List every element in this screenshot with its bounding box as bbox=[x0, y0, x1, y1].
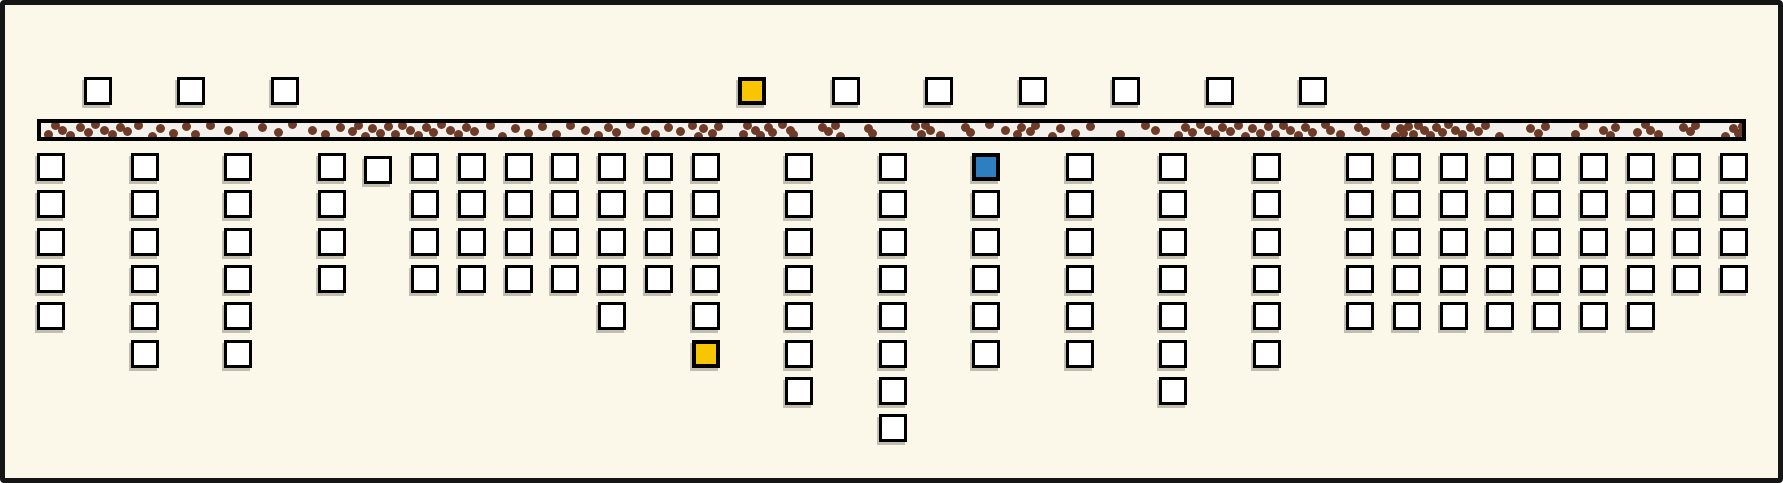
col29-row3-grid-square[interactable] bbox=[1393, 228, 1421, 256]
col32-row4-grid-square[interactable] bbox=[1533, 265, 1561, 293]
track-dot bbox=[1141, 121, 1150, 130]
col13-row4-grid-square[interactable] bbox=[645, 265, 673, 293]
track-dot bbox=[1534, 129, 1543, 138]
top-slot1-grid-square[interactable] bbox=[84, 77, 112, 105]
col4-row2-grid-square[interactable] bbox=[224, 190, 252, 218]
figure-canvas bbox=[0, 0, 1783, 483]
track-dot bbox=[156, 124, 165, 133]
col22-row4-grid-square[interactable] bbox=[1066, 265, 1094, 293]
col34-row4-grid-square[interactable] bbox=[1627, 265, 1655, 293]
col4-row6-grid-square[interactable] bbox=[224, 340, 252, 368]
col16-row7-grid-square[interactable] bbox=[785, 377, 813, 405]
col22-row6-grid-square[interactable] bbox=[1066, 340, 1094, 368]
col18-row6-grid-square[interactable] bbox=[879, 340, 907, 368]
col26-row2-grid-square[interactable] bbox=[1253, 190, 1281, 218]
col6-row2-grid-square[interactable] bbox=[318, 190, 346, 218]
track-dot bbox=[1241, 132, 1250, 141]
col13-row2-grid-square[interactable] bbox=[645, 190, 673, 218]
top-slot21-grid-square[interactable] bbox=[1019, 77, 1047, 105]
col36-row3-grid-square[interactable] bbox=[1720, 228, 1748, 256]
track-dot bbox=[1017, 123, 1026, 132]
col4-row5-grid-square[interactable] bbox=[224, 302, 252, 330]
col26-row3-grid-square[interactable] bbox=[1253, 228, 1281, 256]
col6-row4-grid-square[interactable] bbox=[318, 265, 346, 293]
track-dot bbox=[1294, 131, 1303, 140]
col35-row3-grid-square[interactable] bbox=[1673, 228, 1701, 256]
col8-row4-grid-square[interactable] bbox=[411, 265, 439, 293]
track-dot bbox=[437, 120, 446, 129]
col14-row3-grid-square[interactable] bbox=[692, 228, 720, 256]
top-slot23-grid-square[interactable] bbox=[1112, 77, 1140, 105]
track-dot bbox=[1326, 126, 1335, 135]
col30-row5-grid-square[interactable] bbox=[1440, 302, 1468, 330]
col28-row2-grid-square[interactable] bbox=[1346, 190, 1374, 218]
track-dot bbox=[134, 121, 143, 130]
col6-row3-grid-square[interactable] bbox=[318, 228, 346, 256]
track-dot bbox=[321, 130, 330, 139]
col14-row2-grid-square[interactable] bbox=[692, 190, 720, 218]
track-dot bbox=[258, 123, 267, 132]
col2-row5-grid-square[interactable] bbox=[131, 302, 159, 330]
col33-row2-grid-square[interactable] bbox=[1580, 190, 1608, 218]
col34-row3-grid-square[interactable] bbox=[1627, 228, 1655, 256]
col12-row4-grid-square[interactable] bbox=[598, 265, 626, 293]
col32-row1-grid-square[interactable] bbox=[1533, 153, 1561, 181]
col2-row6-grid-square[interactable] bbox=[131, 340, 159, 368]
col11-row1-grid-square[interactable] bbox=[551, 153, 579, 181]
track-dot bbox=[1174, 131, 1183, 140]
track-dot bbox=[1571, 130, 1580, 139]
track-dot bbox=[361, 132, 370, 141]
col6-row1-grid-square[interactable] bbox=[318, 153, 346, 181]
track-dot bbox=[84, 128, 93, 137]
track-dot bbox=[581, 126, 590, 135]
dotted-track bbox=[37, 119, 1746, 141]
col12-row2-grid-square[interactable] bbox=[598, 190, 626, 218]
track-dot bbox=[66, 131, 75, 140]
col11-row3-grid-square[interactable] bbox=[551, 228, 579, 256]
col34-row1-grid-square[interactable] bbox=[1627, 153, 1655, 181]
col12-row5-grid-square[interactable] bbox=[598, 302, 626, 330]
track-dot bbox=[1606, 131, 1615, 140]
track-dot bbox=[524, 129, 533, 138]
track-dot bbox=[429, 128, 438, 137]
col33-row5-grid-square[interactable] bbox=[1580, 302, 1608, 330]
track-dot bbox=[1071, 129, 1080, 138]
track-dot bbox=[985, 120, 994, 129]
track-dot bbox=[191, 130, 200, 139]
col33-row4-grid-square[interactable] bbox=[1580, 265, 1608, 293]
track-dot bbox=[1308, 128, 1317, 137]
col28-row5-grid-square[interactable] bbox=[1346, 302, 1374, 330]
col18-row3-grid-square[interactable] bbox=[879, 228, 907, 256]
col30-row1-grid-square[interactable] bbox=[1440, 153, 1468, 181]
col22-row5-grid-square[interactable] bbox=[1066, 302, 1094, 330]
col34-row2-grid-square[interactable] bbox=[1627, 190, 1655, 218]
track-dot bbox=[714, 122, 723, 131]
col20-row2-grid-square[interactable] bbox=[972, 190, 1000, 218]
track-dot bbox=[664, 123, 673, 132]
track-dot bbox=[831, 121, 840, 130]
col26-row1-grid-square[interactable] bbox=[1253, 153, 1281, 181]
track-dot bbox=[1001, 126, 1010, 135]
track-dot bbox=[676, 127, 685, 136]
col16-row6-grid-square[interactable] bbox=[785, 340, 813, 368]
top-slot15-highlighted-square-yellow[interactable] bbox=[738, 77, 766, 105]
col26-row5-grid-square[interactable] bbox=[1253, 302, 1281, 330]
track-dot bbox=[966, 128, 975, 137]
track-dot bbox=[1438, 128, 1447, 137]
col14-row1-grid-square[interactable] bbox=[692, 153, 720, 181]
col26-row4-grid-square[interactable] bbox=[1253, 265, 1281, 293]
col18-row2-grid-square[interactable] bbox=[879, 190, 907, 218]
track-dot bbox=[376, 129, 385, 138]
col24-row7-grid-square[interactable] bbox=[1159, 377, 1187, 405]
col31-row5-grid-square[interactable] bbox=[1486, 302, 1514, 330]
track-dot bbox=[1086, 122, 1095, 131]
track-dot bbox=[641, 126, 650, 135]
col29-row4-grid-square[interactable] bbox=[1393, 265, 1421, 293]
col12-row3-grid-square[interactable] bbox=[598, 228, 626, 256]
track-dot bbox=[1264, 122, 1273, 131]
col14-row6-highlighted-square-yellow[interactable] bbox=[692, 340, 720, 368]
top-slot25-grid-square[interactable] bbox=[1206, 77, 1234, 105]
track-dot bbox=[739, 130, 748, 139]
track-dot bbox=[414, 131, 423, 140]
track-dot bbox=[768, 128, 777, 137]
track-dot bbox=[384, 122, 393, 131]
track-dot bbox=[1579, 121, 1588, 130]
col33-row3-grid-square[interactable] bbox=[1580, 228, 1608, 256]
col31-row2-grid-square[interactable] bbox=[1486, 190, 1514, 218]
top-slot17-grid-square[interactable] bbox=[832, 77, 860, 105]
col18-row5-grid-square[interactable] bbox=[879, 302, 907, 330]
col20-row1-highlighted-square-blue[interactable] bbox=[972, 153, 1000, 181]
track-dot bbox=[1426, 131, 1435, 140]
track-dot bbox=[868, 129, 877, 138]
track-dot bbox=[694, 132, 703, 141]
col18-row4-grid-square[interactable] bbox=[879, 265, 907, 293]
col0-row2-grid-square[interactable] bbox=[37, 190, 65, 218]
track-dot bbox=[1481, 121, 1490, 130]
col8-row1-grid-square[interactable] bbox=[411, 153, 439, 181]
col24-row4-grid-square[interactable] bbox=[1159, 265, 1187, 293]
track-dot bbox=[594, 131, 603, 140]
col18-row1-grid-square[interactable] bbox=[879, 153, 907, 181]
col28-row3-grid-square[interactable] bbox=[1346, 228, 1374, 256]
col0-row3-grid-square[interactable] bbox=[37, 228, 65, 256]
col10-row2-grid-square[interactable] bbox=[505, 190, 533, 218]
col10-row3-grid-square[interactable] bbox=[505, 228, 533, 256]
col28-row1-grid-square[interactable] bbox=[1346, 153, 1374, 181]
col18-row7-grid-square[interactable] bbox=[879, 377, 907, 405]
track-dot bbox=[224, 126, 233, 135]
col13-row3-grid-square[interactable] bbox=[645, 228, 673, 256]
col9-row2-grid-square[interactable] bbox=[458, 190, 486, 218]
col22-row1-grid-square[interactable] bbox=[1066, 153, 1094, 181]
col16-row2-grid-square[interactable] bbox=[785, 190, 813, 218]
track-dot bbox=[756, 131, 765, 140]
track-dot bbox=[1611, 123, 1620, 132]
track-dot bbox=[1738, 122, 1746, 131]
track-dot bbox=[239, 131, 248, 140]
track-dot bbox=[486, 121, 495, 130]
track-dot bbox=[182, 122, 191, 131]
col2-row4-grid-square[interactable] bbox=[131, 265, 159, 293]
col10-row1-grid-square[interactable] bbox=[505, 153, 533, 181]
col16-row1-grid-square[interactable] bbox=[785, 153, 813, 181]
col31-row1-grid-square[interactable] bbox=[1486, 153, 1514, 181]
track-dot bbox=[1336, 130, 1345, 139]
track-dot bbox=[789, 130, 798, 139]
track-dot bbox=[1541, 122, 1550, 131]
track-dot bbox=[1721, 132, 1730, 141]
col20-row5-grid-square[interactable] bbox=[972, 302, 1000, 330]
col24-row3-grid-square[interactable] bbox=[1159, 228, 1187, 256]
col11-row4-grid-square[interactable] bbox=[551, 265, 579, 293]
track-dot bbox=[1654, 130, 1663, 139]
track-dot bbox=[612, 128, 621, 137]
col33-row1-grid-square[interactable] bbox=[1580, 153, 1608, 181]
track-dot bbox=[511, 124, 520, 133]
track-dot bbox=[1056, 124, 1065, 133]
col26-row6-grid-square[interactable] bbox=[1253, 340, 1281, 368]
track-dot bbox=[936, 131, 945, 140]
track-dot bbox=[44, 130, 53, 139]
track-dot bbox=[1458, 130, 1467, 139]
track-dot bbox=[108, 130, 117, 139]
col0-row1-grid-square[interactable] bbox=[37, 153, 65, 181]
col2-row2-grid-square[interactable] bbox=[131, 190, 159, 218]
col24-row2-grid-square[interactable] bbox=[1159, 190, 1187, 218]
track-dot bbox=[1211, 130, 1220, 139]
col13-row1-grid-square[interactable] bbox=[645, 153, 673, 181]
track-dot bbox=[1048, 132, 1057, 141]
col31-row4-grid-square[interactable] bbox=[1486, 265, 1514, 293]
track-dot bbox=[566, 121, 575, 130]
track-dot bbox=[1151, 126, 1160, 135]
col7-row1-grid-square[interactable] bbox=[364, 156, 392, 184]
track-dot bbox=[917, 130, 926, 139]
col4-row4-grid-square[interactable] bbox=[224, 265, 252, 293]
col30-row2-grid-square[interactable] bbox=[1440, 190, 1468, 218]
track-dot bbox=[498, 132, 507, 141]
track-dot bbox=[1116, 130, 1125, 139]
col0-row5-grid-square[interactable] bbox=[37, 302, 65, 330]
top-slot3-grid-square[interactable] bbox=[177, 77, 205, 105]
col36-row4-grid-square[interactable] bbox=[1720, 265, 1748, 293]
track-dot bbox=[148, 132, 157, 141]
col12-row1-grid-square[interactable] bbox=[598, 153, 626, 181]
track-dot bbox=[626, 120, 635, 129]
track-dot bbox=[1409, 130, 1418, 139]
track-dot bbox=[688, 121, 697, 130]
col9-row3-grid-square[interactable] bbox=[458, 228, 486, 256]
col10-row4-grid-square[interactable] bbox=[505, 265, 533, 293]
col2-row3-grid-square[interactable] bbox=[131, 228, 159, 256]
track-dot bbox=[123, 127, 132, 136]
col11-row2-grid-square[interactable] bbox=[551, 190, 579, 218]
col16-row5-grid-square[interactable] bbox=[785, 302, 813, 330]
col16-row3-grid-square[interactable] bbox=[785, 228, 813, 256]
col8-row3-grid-square[interactable] bbox=[411, 228, 439, 256]
track-dot bbox=[1381, 121, 1390, 130]
col28-row4-grid-square[interactable] bbox=[1346, 265, 1374, 293]
track-dot bbox=[926, 126, 935, 135]
track-dot bbox=[308, 126, 317, 135]
col32-row3-grid-square[interactable] bbox=[1533, 228, 1561, 256]
track-dot bbox=[1188, 128, 1197, 137]
col24-row5-grid-square[interactable] bbox=[1159, 302, 1187, 330]
col9-row4-grid-square[interactable] bbox=[458, 265, 486, 293]
col20-row4-grid-square[interactable] bbox=[972, 265, 1000, 293]
col2-row1-grid-square[interactable] bbox=[131, 153, 159, 181]
track-dot bbox=[1691, 121, 1700, 130]
col9-row1-grid-square[interactable] bbox=[458, 153, 486, 181]
col14-row5-grid-square[interactable] bbox=[692, 302, 720, 330]
col8-row2-grid-square[interactable] bbox=[411, 190, 439, 218]
col20-row6-grid-square[interactable] bbox=[972, 340, 1000, 368]
track-dot bbox=[288, 120, 297, 129]
track-dot bbox=[336, 123, 345, 132]
track-dot bbox=[1256, 129, 1265, 138]
track-dot bbox=[836, 132, 845, 141]
track-dot bbox=[651, 130, 660, 139]
col22-row2-grid-square[interactable] bbox=[1066, 190, 1094, 218]
col29-row5-grid-square[interactable] bbox=[1393, 302, 1421, 330]
col35-row4-grid-square[interactable] bbox=[1673, 265, 1701, 293]
track-dot bbox=[391, 130, 400, 139]
col18-row8-grid-square[interactable] bbox=[879, 414, 907, 442]
track-dot bbox=[91, 120, 100, 129]
col36-row2-grid-square[interactable] bbox=[1720, 190, 1748, 218]
col32-row5-grid-square[interactable] bbox=[1533, 302, 1561, 330]
col24-row6-grid-square[interactable] bbox=[1159, 340, 1187, 368]
track-dot bbox=[454, 130, 463, 139]
col29-row1-grid-square[interactable] bbox=[1393, 153, 1421, 181]
track-dot bbox=[699, 124, 708, 133]
col30-row4-grid-square[interactable] bbox=[1440, 265, 1468, 293]
col35-row1-grid-square[interactable] bbox=[1673, 153, 1701, 181]
track-dot bbox=[169, 129, 178, 138]
track-dot bbox=[1226, 127, 1235, 136]
track-dot bbox=[206, 121, 215, 130]
track-dot bbox=[1031, 121, 1040, 130]
col4-row3-grid-square[interactable] bbox=[224, 228, 252, 256]
col31-row3-grid-square[interactable] bbox=[1486, 228, 1514, 256]
col29-row2-grid-square[interactable] bbox=[1393, 190, 1421, 218]
col36-row1-grid-square[interactable] bbox=[1720, 153, 1748, 181]
col34-row5-grid-square[interactable] bbox=[1627, 302, 1655, 330]
top-slot19-grid-square[interactable] bbox=[925, 77, 953, 105]
col20-row3-grid-square[interactable] bbox=[972, 228, 1000, 256]
track-dot bbox=[552, 130, 561, 139]
col22-row3-grid-square[interactable] bbox=[1066, 228, 1094, 256]
top-slot27-grid-square[interactable] bbox=[1299, 77, 1327, 105]
top-slot5-grid-square[interactable] bbox=[271, 77, 299, 105]
track-dot bbox=[1271, 130, 1280, 139]
col32-row2-grid-square[interactable] bbox=[1533, 190, 1561, 218]
col16-row4-grid-square[interactable] bbox=[785, 265, 813, 293]
track-dot bbox=[1633, 128, 1642, 137]
track-dot bbox=[354, 121, 363, 130]
track-dot bbox=[1495, 132, 1504, 141]
track-dot bbox=[1234, 121, 1243, 130]
col30-row3-grid-square[interactable] bbox=[1440, 228, 1468, 256]
col35-row2-grid-square[interactable] bbox=[1673, 190, 1701, 218]
track-dot bbox=[470, 127, 479, 136]
track-dot bbox=[274, 128, 283, 137]
col24-row1-grid-square[interactable] bbox=[1159, 153, 1187, 181]
track-dot bbox=[1361, 127, 1370, 136]
col4-row1-grid-square[interactable] bbox=[224, 153, 252, 181]
track-dot bbox=[538, 122, 547, 131]
col14-row4-grid-square[interactable] bbox=[692, 265, 720, 293]
col0-row4-grid-square[interactable] bbox=[37, 265, 65, 293]
